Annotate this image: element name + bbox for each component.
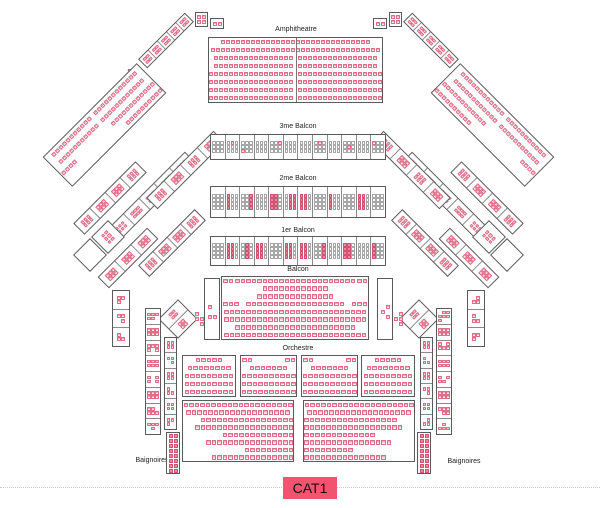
seat[interactable]: [438, 319, 442, 323]
seat[interactable]: [185, 382, 190, 387]
seat[interactable]: [266, 40, 270, 44]
seat[interactable]: [274, 80, 278, 84]
seat[interactable]: [362, 206, 366, 210]
seat[interactable]: [147, 332, 151, 336]
seat[interactable]: [231, 247, 235, 251]
seat[interactable]: [185, 20, 190, 25]
seat[interactable]: [218, 358, 223, 363]
seat[interactable]: [354, 418, 359, 423]
seat[interactable]: [199, 366, 204, 371]
seat[interactable]: [347, 390, 352, 395]
seat[interactable]: [369, 390, 374, 395]
seat[interactable]: [147, 344, 151, 348]
seat[interactable]: [228, 403, 233, 408]
seat[interactable]: [312, 294, 317, 299]
seat[interactable]: [264, 72, 268, 76]
seat[interactable]: [401, 410, 406, 415]
seat[interactable]: [446, 332, 450, 336]
seat[interactable]: [332, 455, 337, 460]
seat[interactable]: [420, 439, 424, 443]
seat[interactable]: [217, 418, 222, 423]
seat[interactable]: [263, 302, 268, 307]
seat[interactable]: [303, 358, 308, 363]
seat[interactable]: [372, 251, 376, 255]
seat[interactable]: [166, 38, 171, 43]
seat[interactable]: [326, 448, 331, 453]
seat[interactable]: [307, 410, 312, 415]
seat[interactable]: [285, 325, 290, 330]
seat[interactable]: [270, 206, 274, 210]
seat[interactable]: [402, 374, 407, 379]
seat[interactable]: [208, 410, 213, 415]
seat[interactable]: [314, 374, 319, 379]
seat[interactable]: [231, 40, 235, 44]
seat[interactable]: [304, 440, 309, 445]
seat[interactable]: [372, 141, 376, 145]
seat[interactable]: [353, 80, 357, 84]
seat[interactable]: [242, 358, 247, 363]
seat[interactable]: [289, 418, 294, 423]
seat[interactable]: [219, 56, 223, 60]
seat[interactable]: [284, 88, 288, 92]
seat[interactable]: [214, 72, 218, 76]
seat[interactable]: [239, 88, 243, 92]
seat[interactable]: [381, 310, 385, 314]
seat[interactable]: [303, 72, 307, 76]
seat[interactable]: [328, 72, 332, 76]
seat[interactable]: [427, 341, 431, 345]
seat[interactable]: [438, 391, 442, 395]
seat[interactable]: [229, 382, 234, 387]
seat[interactable]: [364, 382, 369, 387]
seat[interactable]: [271, 40, 275, 44]
seat[interactable]: [341, 40, 345, 44]
seat[interactable]: [279, 325, 284, 330]
seat[interactable]: [219, 88, 223, 92]
seat[interactable]: [249, 80, 253, 84]
seat[interactable]: [171, 357, 175, 361]
seat[interactable]: [234, 425, 239, 430]
seat[interactable]: [370, 455, 375, 460]
seat[interactable]: [245, 448, 250, 453]
seat[interactable]: [250, 366, 255, 371]
seat[interactable]: [358, 198, 362, 202]
seat[interactable]: [174, 469, 178, 473]
seat[interactable]: [337, 440, 342, 445]
seat[interactable]: [278, 418, 283, 423]
seat[interactable]: [223, 425, 228, 430]
seat[interactable]: [372, 243, 376, 247]
seat[interactable]: [396, 15, 400, 19]
seat[interactable]: [211, 48, 215, 52]
seat[interactable]: [381, 22, 385, 26]
seat[interactable]: [427, 403, 431, 407]
seat[interactable]: [369, 382, 374, 387]
seat[interactable]: [283, 455, 288, 460]
seat[interactable]: [316, 403, 321, 408]
seat[interactable]: [387, 418, 392, 423]
seat[interactable]: [250, 418, 255, 423]
seat[interactable]: [196, 358, 201, 363]
seat[interactable]: [311, 40, 315, 44]
seat[interactable]: [174, 444, 178, 448]
seat[interactable]: [423, 376, 427, 380]
seat[interactable]: [263, 325, 268, 330]
seat[interactable]: [155, 380, 159, 384]
seat[interactable]: [261, 440, 266, 445]
seat[interactable]: [412, 315, 417, 320]
seat[interactable]: [174, 459, 178, 463]
seat[interactable]: [226, 40, 230, 44]
seat[interactable]: [301, 325, 306, 330]
seat[interactable]: [285, 317, 290, 322]
seat[interactable]: [530, 170, 536, 176]
seat[interactable]: [147, 364, 151, 368]
seat[interactable]: [214, 88, 218, 92]
seat[interactable]: [246, 48, 250, 52]
seat[interactable]: [381, 418, 386, 423]
seat[interactable]: [356, 333, 361, 338]
seat[interactable]: [261, 433, 266, 438]
seat[interactable]: [417, 238, 422, 243]
seat[interactable]: [323, 302, 328, 307]
seat[interactable]: [278, 448, 283, 453]
seat[interactable]: [478, 192, 483, 197]
seat[interactable]: [420, 469, 424, 473]
seat[interactable]: [213, 22, 217, 26]
seat[interactable]: [279, 96, 283, 100]
seat[interactable]: [329, 333, 334, 338]
seat[interactable]: [509, 223, 514, 228]
seat[interactable]: [147, 348, 151, 352]
seat[interactable]: [259, 80, 263, 84]
seat[interactable]: [236, 48, 240, 52]
seat[interactable]: [394, 317, 398, 321]
seat[interactable]: [219, 410, 224, 415]
seat[interactable]: [301, 294, 306, 299]
seat[interactable]: [196, 374, 201, 379]
seat[interactable]: [263, 333, 268, 338]
seat[interactable]: [366, 40, 370, 44]
seat[interactable]: [359, 433, 364, 438]
seat[interactable]: [174, 464, 178, 468]
seat[interactable]: [340, 410, 345, 415]
seat[interactable]: [358, 80, 362, 84]
seat[interactable]: [291, 390, 296, 395]
seat[interactable]: [318, 325, 323, 330]
seat[interactable]: [241, 48, 245, 52]
seat[interactable]: [289, 206, 293, 210]
seat[interactable]: [254, 72, 258, 76]
seat[interactable]: [224, 333, 229, 338]
seat[interactable]: [307, 294, 312, 299]
seat[interactable]: [308, 88, 312, 92]
seat[interactable]: [357, 410, 362, 415]
seat[interactable]: [381, 440, 386, 445]
seat[interactable]: [365, 403, 370, 408]
seat[interactable]: [195, 403, 200, 408]
seat[interactable]: [481, 120, 487, 126]
seat[interactable]: [386, 374, 391, 379]
seat[interactable]: [391, 382, 396, 387]
seat[interactable]: [231, 255, 235, 259]
seat[interactable]: [376, 22, 380, 26]
seat[interactable]: [438, 395, 442, 399]
seat[interactable]: [322, 255, 326, 259]
seat[interactable]: [427, 391, 431, 395]
seat[interactable]: [308, 96, 312, 100]
seat[interactable]: [224, 64, 228, 68]
seat[interactable]: [229, 279, 234, 284]
seat[interactable]: [303, 96, 307, 100]
seat[interactable]: [296, 310, 301, 315]
seat[interactable]: [363, 279, 368, 284]
seat[interactable]: [249, 206, 253, 210]
seat[interactable]: [420, 464, 424, 468]
seat[interactable]: [391, 15, 395, 19]
seat[interactable]: [442, 423, 446, 427]
seat[interactable]: [359, 418, 364, 423]
seat[interactable]: [281, 48, 285, 52]
seat[interactable]: [206, 403, 211, 408]
seat[interactable]: [215, 366, 220, 371]
seat[interactable]: [261, 448, 266, 453]
seat[interactable]: [261, 48, 265, 52]
seat[interactable]: [296, 325, 301, 330]
seat[interactable]: [242, 382, 247, 387]
seat[interactable]: [386, 390, 391, 395]
seat[interactable]: [245, 251, 249, 255]
seat[interactable]: [252, 279, 257, 284]
seat[interactable]: [155, 344, 159, 348]
seat[interactable]: [362, 410, 367, 415]
seat[interactable]: [392, 418, 397, 423]
seat[interactable]: [138, 208, 143, 213]
seat[interactable]: [227, 243, 231, 247]
seat[interactable]: [285, 279, 290, 284]
seat[interactable]: [289, 64, 293, 68]
seat[interactable]: [391, 374, 396, 379]
seat[interactable]: [252, 410, 257, 415]
seat[interactable]: [275, 382, 280, 387]
seat[interactable]: [375, 358, 380, 363]
seat[interactable]: [438, 427, 442, 431]
seat[interactable]: [278, 440, 283, 445]
seat[interactable]: [227, 206, 231, 210]
seat[interactable]: [353, 56, 357, 60]
seat[interactable]: [226, 366, 231, 371]
seat[interactable]: [304, 247, 308, 251]
seat[interactable]: [333, 56, 337, 60]
seat[interactable]: [368, 64, 372, 68]
seat[interactable]: [365, 440, 370, 445]
seat[interactable]: [114, 270, 119, 275]
seat[interactable]: [274, 317, 279, 322]
seat[interactable]: [468, 260, 473, 265]
seat[interactable]: [336, 40, 340, 44]
seat[interactable]: [310, 425, 315, 430]
seat[interactable]: [284, 96, 288, 100]
seat[interactable]: [223, 279, 228, 284]
seat[interactable]: [323, 294, 328, 299]
seat[interactable]: [171, 372, 175, 376]
seat[interactable]: [190, 382, 195, 387]
seat[interactable]: [351, 48, 355, 52]
seat[interactable]: [399, 322, 403, 326]
seat[interactable]: [322, 247, 326, 251]
seat[interactable]: [318, 56, 322, 60]
seat[interactable]: [304, 243, 308, 247]
seat[interactable]: [476, 319, 480, 323]
seat[interactable]: [362, 202, 366, 206]
seat[interactable]: [333, 80, 337, 84]
seat[interactable]: [365, 425, 370, 430]
seat[interactable]: [328, 64, 332, 68]
seat[interactable]: [275, 390, 280, 395]
seat[interactable]: [345, 310, 350, 315]
seat[interactable]: [406, 410, 411, 415]
seat[interactable]: [246, 325, 251, 330]
seat[interactable]: [330, 374, 335, 379]
seat[interactable]: [351, 325, 356, 330]
seat[interactable]: [245, 418, 250, 423]
seat[interactable]: [285, 243, 289, 247]
seat[interactable]: [155, 411, 159, 415]
seat[interactable]: [151, 332, 155, 336]
seat[interactable]: [209, 88, 213, 92]
seat[interactable]: [269, 88, 273, 92]
seat[interactable]: [446, 376, 450, 380]
seat[interactable]: [200, 322, 204, 326]
seat[interactable]: [167, 422, 171, 426]
seat[interactable]: [303, 64, 307, 68]
seat[interactable]: [300, 206, 304, 210]
seat[interactable]: [280, 374, 285, 379]
seat[interactable]: [438, 315, 442, 319]
seat[interactable]: [286, 374, 291, 379]
seat[interactable]: [343, 440, 348, 445]
seat[interactable]: [246, 310, 251, 315]
seat[interactable]: [360, 403, 365, 408]
seat[interactable]: [258, 390, 263, 395]
seat[interactable]: [197, 20, 201, 24]
seat[interactable]: [425, 459, 429, 463]
seat[interactable]: [318, 317, 323, 322]
seat[interactable]: [171, 418, 175, 422]
seat[interactable]: [256, 247, 260, 251]
seat[interactable]: [171, 361, 175, 365]
seat[interactable]: [217, 440, 222, 445]
seat[interactable]: [397, 390, 402, 395]
seat[interactable]: [333, 96, 337, 100]
seat[interactable]: [364, 374, 369, 379]
seat[interactable]: [343, 56, 347, 60]
seat[interactable]: [313, 96, 317, 100]
seat[interactable]: [279, 80, 283, 84]
seat[interactable]: [340, 302, 345, 307]
seat[interactable]: [190, 374, 195, 379]
seat[interactable]: [241, 40, 245, 44]
seat[interactable]: [326, 418, 331, 423]
seat[interactable]: [167, 376, 171, 380]
seat[interactable]: [290, 310, 295, 315]
seat[interactable]: [289, 425, 294, 430]
seat[interactable]: [392, 425, 397, 430]
seat[interactable]: [274, 194, 278, 198]
seat[interactable]: [229, 56, 233, 60]
seat[interactable]: [185, 390, 190, 395]
seat[interactable]: [221, 48, 225, 52]
seat[interactable]: [239, 64, 243, 68]
seat[interactable]: [399, 317, 403, 321]
seat[interactable]: [408, 382, 413, 387]
seat[interactable]: [343, 64, 347, 68]
seat[interactable]: [212, 418, 217, 423]
seat[interactable]: [147, 380, 151, 384]
seat[interactable]: [356, 40, 360, 44]
seat[interactable]: [328, 80, 332, 84]
seat[interactable]: [334, 310, 339, 315]
seat[interactable]: [341, 390, 346, 395]
seat[interactable]: [231, 141, 235, 145]
seat[interactable]: [253, 374, 258, 379]
seat[interactable]: [147, 328, 151, 332]
seat[interactable]: [319, 382, 324, 387]
seat[interactable]: [316, 40, 320, 44]
seat[interactable]: [263, 294, 268, 299]
seat[interactable]: [229, 80, 233, 84]
seat[interactable]: [306, 40, 310, 44]
seat[interactable]: [303, 382, 308, 387]
seat[interactable]: [376, 403, 381, 408]
seat[interactable]: [343, 243, 347, 247]
seat[interactable]: [438, 328, 442, 332]
seat[interactable]: [391, 20, 395, 24]
seat[interactable]: [472, 337, 476, 341]
seat[interactable]: [270, 202, 274, 206]
seat[interactable]: [274, 64, 278, 68]
seat[interactable]: [285, 255, 289, 259]
seat[interactable]: [214, 64, 218, 68]
seat[interactable]: [289, 243, 293, 247]
seat[interactable]: [239, 403, 244, 408]
seat[interactable]: [213, 315, 217, 319]
seat[interactable]: [322, 366, 327, 371]
seat[interactable]: [246, 333, 251, 338]
seat[interactable]: [234, 72, 238, 76]
seat[interactable]: [363, 56, 367, 60]
seat[interactable]: [338, 403, 343, 408]
seat[interactable]: [308, 374, 313, 379]
seat[interactable]: [308, 80, 312, 84]
seat[interactable]: [345, 279, 350, 284]
seat[interactable]: [242, 374, 247, 379]
seat[interactable]: [383, 366, 388, 371]
seat[interactable]: [289, 194, 293, 198]
seat[interactable]: [207, 374, 212, 379]
seat[interactable]: [283, 433, 288, 438]
seat[interactable]: [256, 425, 261, 430]
seat[interactable]: [241, 279, 246, 284]
seat[interactable]: [283, 440, 288, 445]
seat[interactable]: [301, 310, 306, 315]
seat[interactable]: [400, 366, 405, 371]
seat[interactable]: [371, 48, 375, 52]
seat[interactable]: [274, 279, 279, 284]
seat[interactable]: [476, 296, 480, 300]
seat[interactable]: [285, 251, 289, 255]
seat[interactable]: [212, 440, 217, 445]
